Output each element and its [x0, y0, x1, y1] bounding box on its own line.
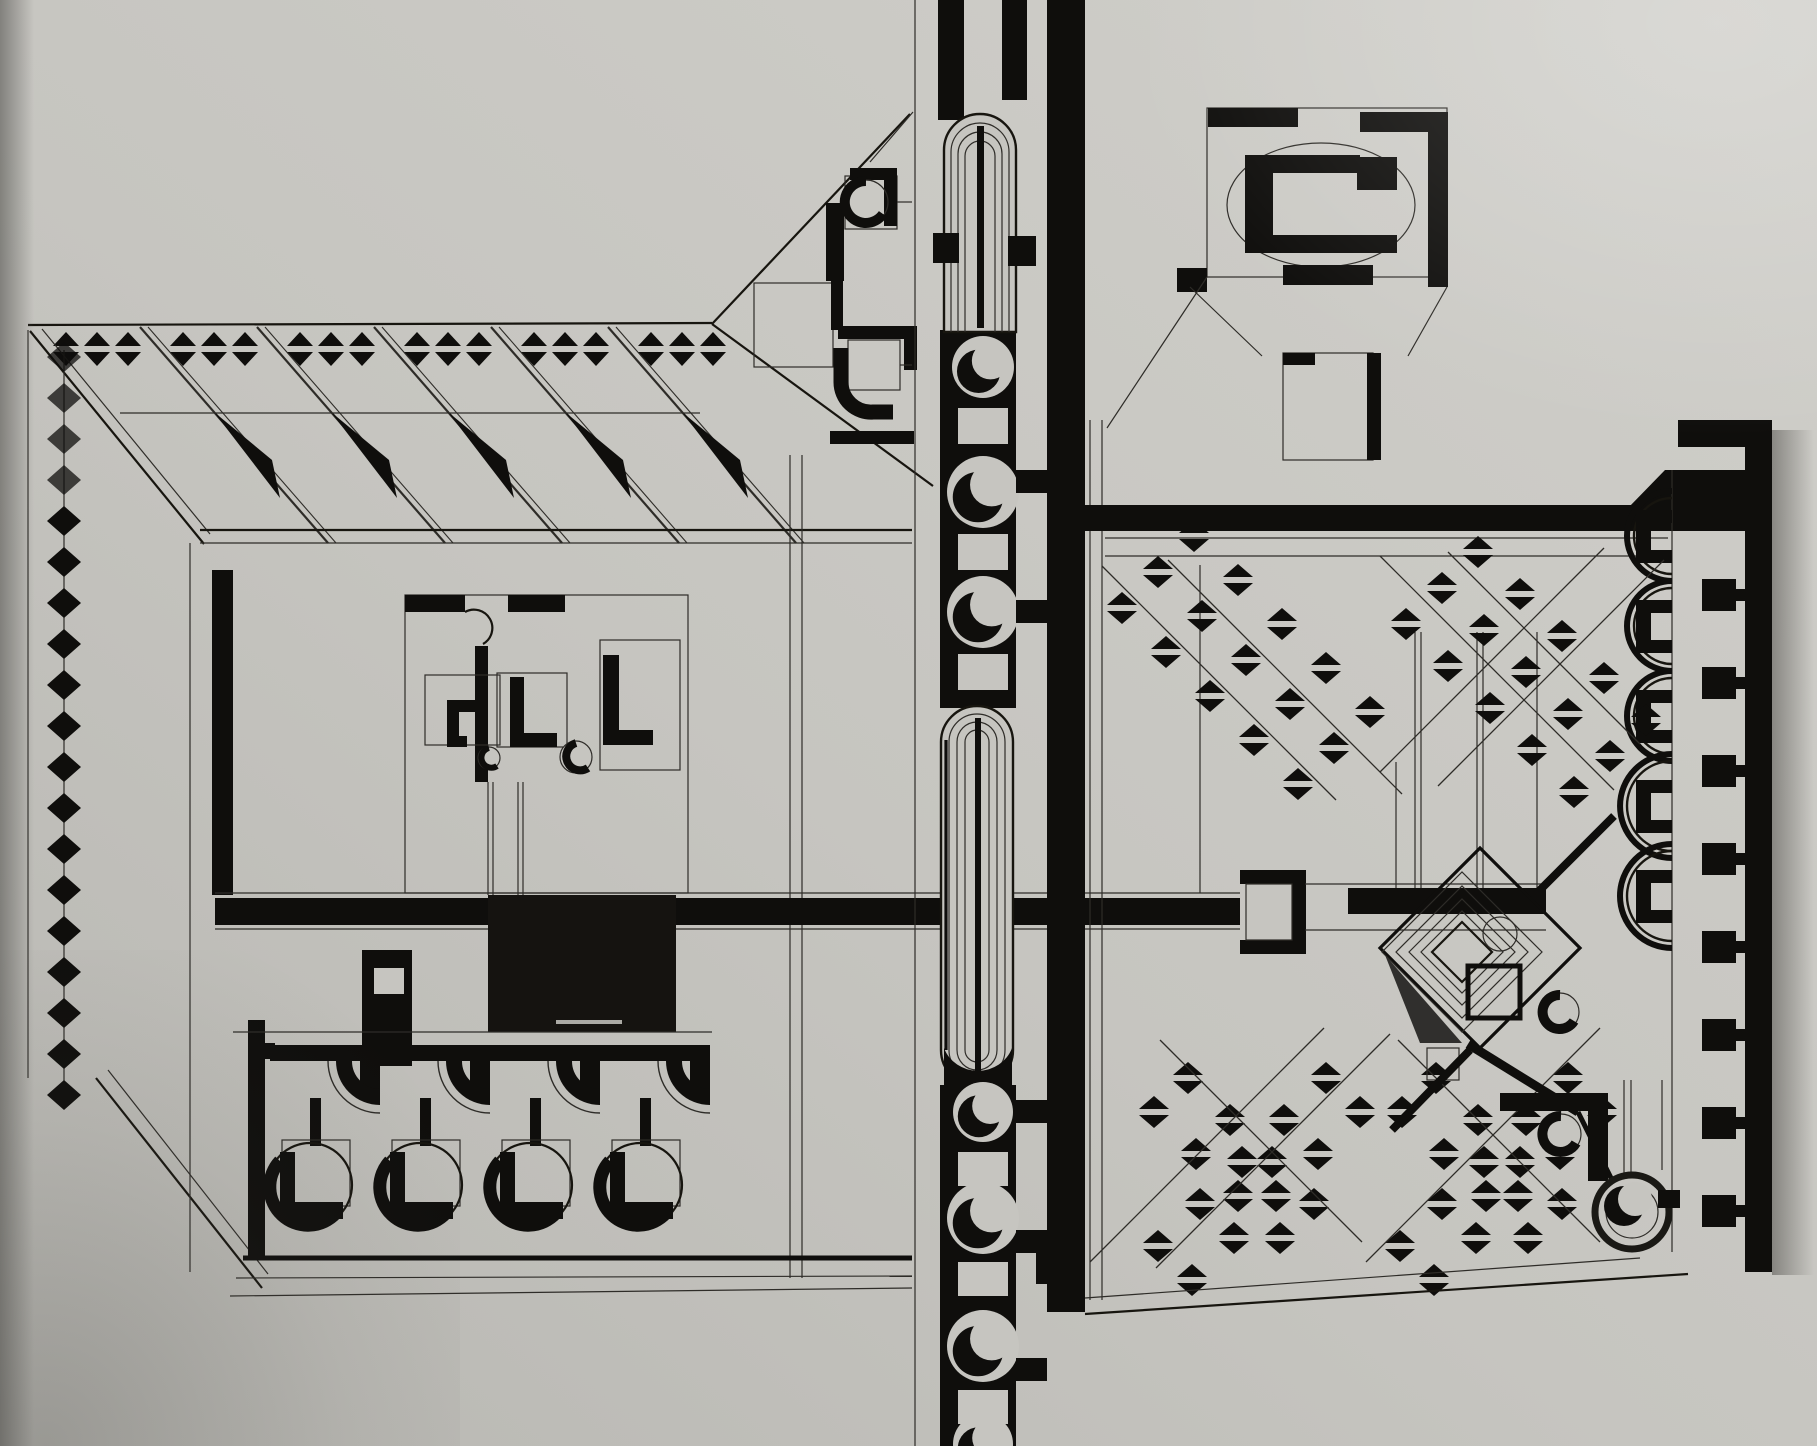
rotunda-circle-moon-cut — [970, 1189, 1013, 1232]
rotunda-block — [958, 1152, 1008, 1186]
constructivist-plan-drawing — [0, 0, 1817, 1446]
portal-mullion — [977, 126, 984, 328]
rotunda-circle-moon-cut — [972, 1088, 1008, 1124]
rotunda-connector — [1016, 600, 1047, 623]
wall-stud — [1702, 1195, 1736, 1227]
stud-neck — [1734, 1117, 1747, 1129]
stud-neck — [1734, 1029, 1747, 1041]
rotunda-block — [958, 534, 1008, 570]
spine-top-bar — [938, 0, 964, 120]
block-left-wall — [212, 570, 233, 895]
wall-stud — [1702, 843, 1736, 875]
highlight-vignette — [1150, 0, 1817, 460]
stud-neck — [1734, 501, 1747, 513]
stud-neck — [1734, 589, 1747, 601]
rotunda-circle-moon-cut — [970, 583, 1013, 626]
wall-stud — [1702, 667, 1736, 699]
corner-wall — [1588, 1093, 1608, 1181]
rotunda-block — [958, 408, 1008, 444]
panel-highlight — [556, 1020, 622, 1024]
apse-bracket — [1636, 910, 1672, 923]
cell-wall — [505, 1202, 563, 1219]
room-wall — [405, 595, 465, 612]
long-gallery — [941, 706, 1013, 1086]
wall-shadow — [1772, 430, 1814, 1275]
apse-bracket — [1636, 640, 1672, 653]
block-top-band — [1085, 505, 1640, 531]
spine-top-bar-2 — [1002, 0, 1027, 100]
apse-bracket — [1636, 510, 1672, 523]
bar-bump — [1036, 1248, 1047, 1284]
rotunda-circle-moon-cut — [970, 1317, 1013, 1360]
portal-shelf — [933, 233, 959, 263]
spine-main-bar — [1047, 0, 1085, 1312]
bracket-court — [1246, 884, 1292, 940]
portal-shelf — [1008, 236, 1036, 266]
rotunda-block — [958, 654, 1008, 690]
wall-l — [510, 733, 557, 747]
corner-connector — [1658, 1190, 1680, 1208]
rotunda-circle-moon-cut — [972, 342, 1009, 379]
wall-stud — [1702, 931, 1736, 963]
stud-neck — [1734, 1205, 1747, 1217]
cell-wall — [615, 1202, 673, 1219]
rotunda-block — [958, 1262, 1008, 1296]
stud-neck — [1734, 677, 1747, 689]
cross-axis-band — [215, 898, 1240, 925]
wall-stud — [1702, 1019, 1736, 1051]
rotunda-connector — [1016, 1358, 1047, 1381]
stud-neck — [1734, 853, 1747, 865]
stud-neck — [1734, 765, 1747, 777]
pier-stem — [640, 1098, 651, 1146]
corner-vignette — [0, 950, 460, 1446]
wall-f — [447, 700, 477, 712]
gallery-mullion — [975, 718, 981, 1074]
stud-neck — [1734, 941, 1747, 953]
wall-stud — [1702, 491, 1736, 523]
corner-moon-cut — [1618, 1182, 1652, 1216]
bracket-bar — [1240, 940, 1304, 954]
apse-bracket — [1636, 870, 1672, 883]
rotunda-connector — [1016, 470, 1047, 493]
wall-stud — [1702, 755, 1736, 787]
pier-stem — [530, 1098, 541, 1146]
apse-bracket — [1636, 820, 1672, 833]
wall-l — [603, 730, 653, 745]
wall-f — [447, 736, 467, 747]
wall-stud — [1702, 579, 1736, 611]
rotunda-block — [958, 1390, 1008, 1424]
dark-panel — [488, 895, 676, 1032]
apse-bracket — [1636, 550, 1672, 563]
apse-bracket — [1636, 600, 1672, 613]
room-b-wall-bottom — [830, 431, 914, 444]
apse-bracket — [1636, 690, 1672, 703]
rotunda-connector — [1016, 1100, 1047, 1123]
right-wall-strip — [1745, 420, 1772, 1272]
rotunda-circle-moon-cut — [970, 463, 1013, 506]
scanned-drawing-page — [0, 0, 1817, 1446]
funnel-wall-bar-2 — [831, 278, 843, 330]
room-wall — [508, 595, 565, 612]
wall-stud — [1702, 1107, 1736, 1139]
cell-wall — [610, 1152, 625, 1210]
corner-wall — [1500, 1093, 1600, 1111]
apse-bracket — [1636, 780, 1672, 793]
cell-wall — [500, 1152, 515, 1210]
funnel-wall-bar — [826, 203, 844, 281]
